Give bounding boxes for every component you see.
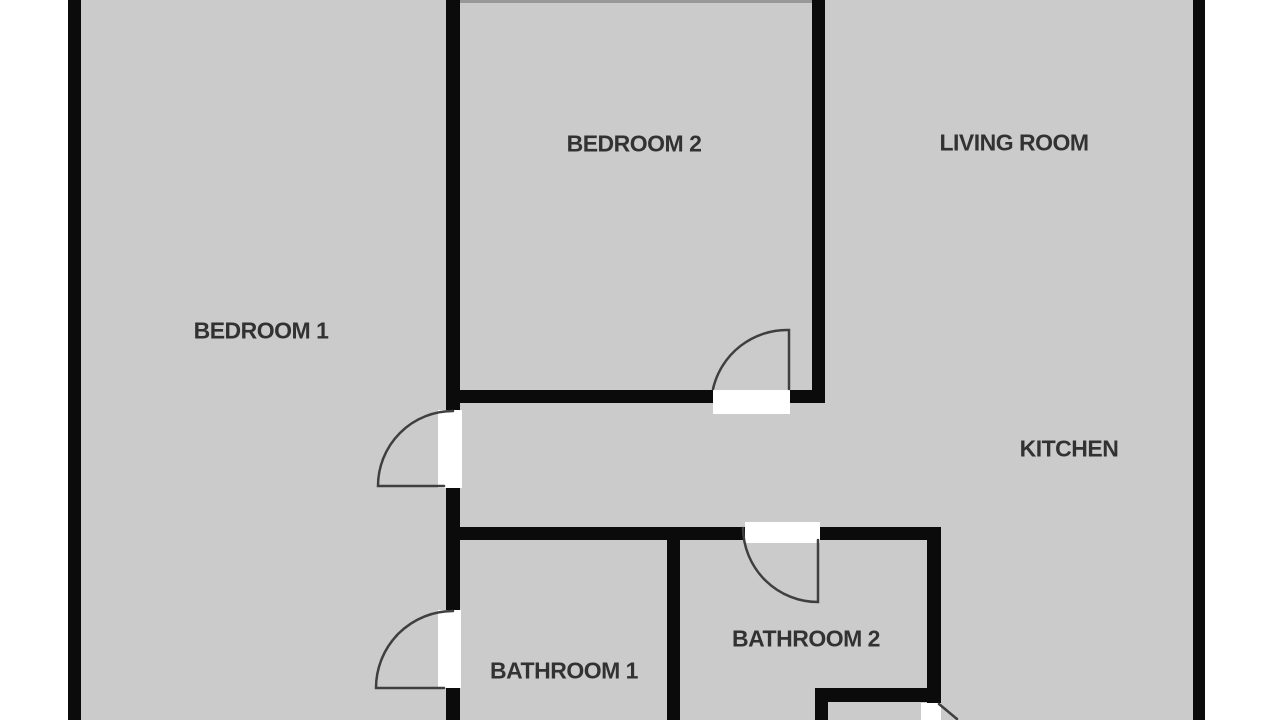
floor-area [68, 0, 1205, 720]
room-label-living-room: LIVING ROOM [939, 130, 1088, 157]
door-gap-bathroom2 [745, 522, 820, 543]
room-label-kitchen: KITCHEN [1020, 436, 1119, 463]
floor-plan: BEDROOM 1 BEDROOM 2 LIVING ROOM KITCHEN … [0, 0, 1280, 720]
door-gap-bedroom1-lower [438, 610, 461, 688]
room-label-bathroom-2: BATHROOM 2 [732, 626, 880, 653]
wall-outer-left [68, 0, 81, 720]
door-gap-bedroom1-upper [438, 410, 462, 488]
wall-outer-right [1193, 0, 1205, 720]
wall-bedroom1-divider-middle [446, 488, 460, 611]
wall-closet-left [815, 702, 828, 720]
wall-bedroom1-divider-upper [446, 0, 460, 410]
wall-bathroom2-right [927, 527, 941, 704]
door-gap-bedroom2 [713, 390, 790, 414]
door-gap-closet [921, 703, 941, 720]
room-label-bedroom-1: BEDROOM 1 [194, 318, 329, 345]
room-label-bathroom-1: BATHROOM 1 [490, 658, 638, 685]
wall-hallway-bottom [446, 527, 941, 540]
wall-bedroom2-livingroom-divider [812, 0, 825, 403]
wall-bedroom1-divider-lower [446, 687, 460, 720]
wall-outer-top-edge [446, 0, 825, 3]
wall-bathroom-divider [667, 527, 680, 720]
room-label-bedroom-2: BEDROOM 2 [567, 131, 702, 158]
wall-closet-top [815, 688, 941, 702]
